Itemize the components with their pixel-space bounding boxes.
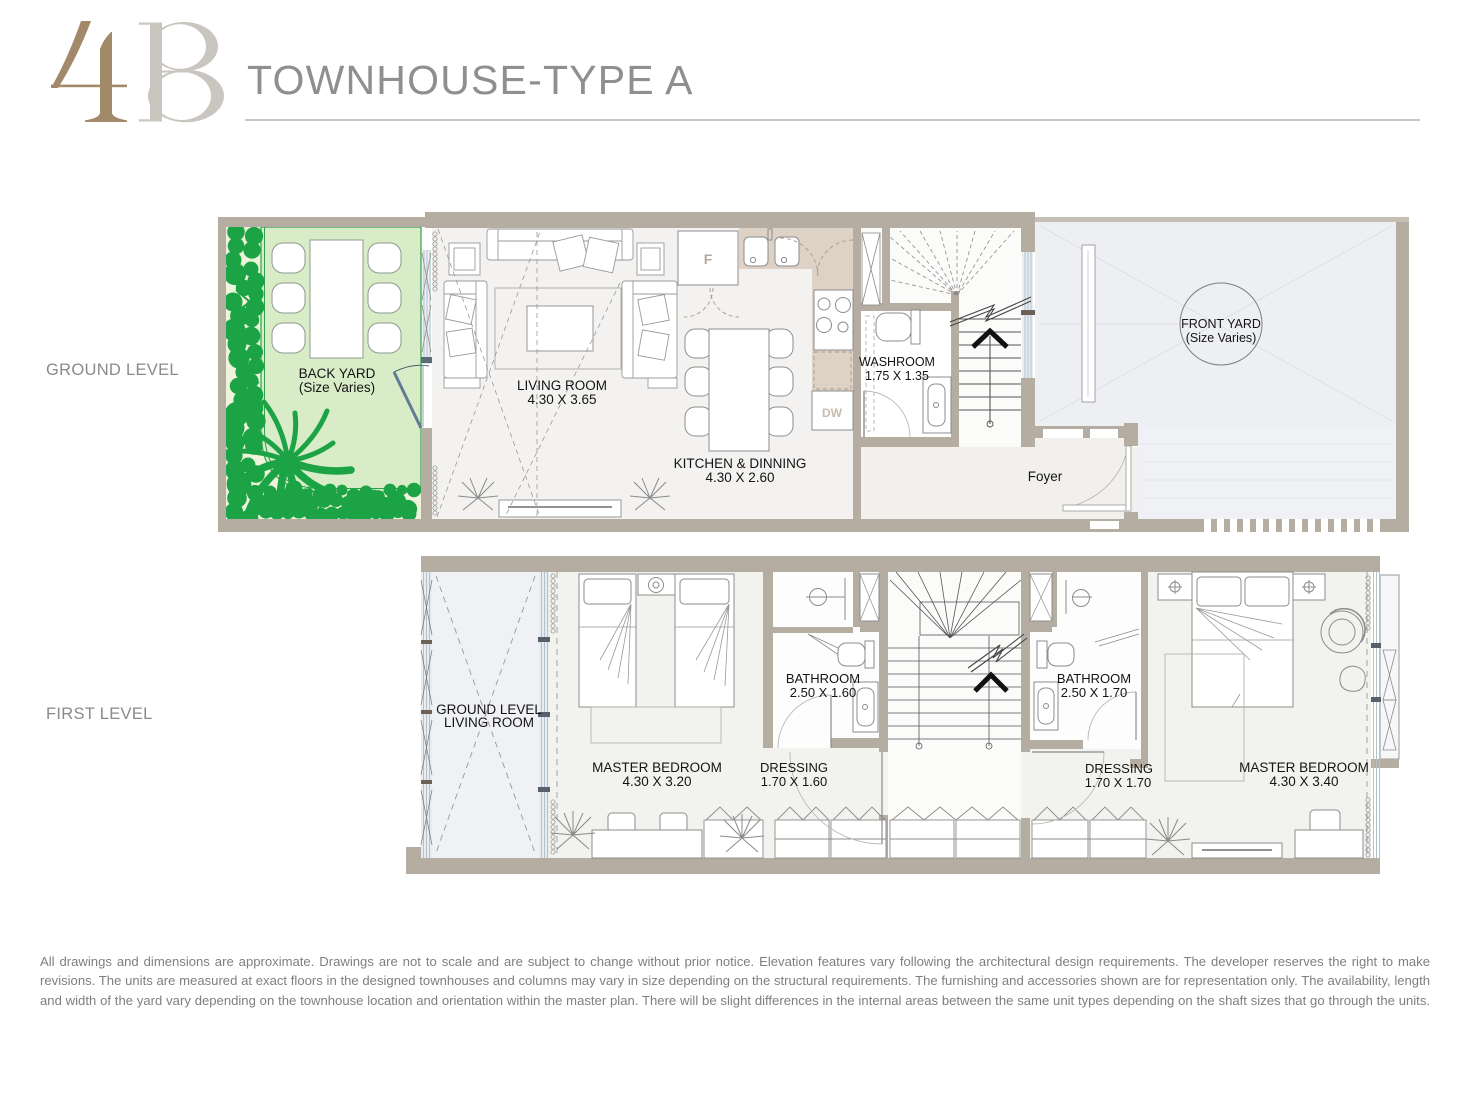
svg-text:4.30 X 3.20: 4.30 X 3.20 (622, 774, 691, 789)
svg-text:BACK YARD: BACK YARD (299, 366, 376, 381)
svg-text:4.30 X 2.60: 4.30 X 2.60 (705, 470, 774, 485)
svg-text:BATHROOM: BATHROOM (786, 671, 860, 686)
svg-text:FRONT YARD: FRONT YARD (1181, 317, 1261, 331)
svg-text:Foyer: Foyer (1028, 469, 1063, 484)
svg-text:LIVING ROOM: LIVING ROOM (444, 715, 534, 730)
svg-text:1.75 X 1.35: 1.75 X 1.35 (865, 369, 929, 383)
svg-text:(Size Varies): (Size Varies) (1186, 331, 1257, 345)
svg-text:1.70 X 1.60: 1.70 X 1.60 (761, 774, 828, 789)
svg-text:2.50 X 1.70: 2.50 X 1.70 (1061, 685, 1128, 700)
svg-text:KITCHEN & DINNING: KITCHEN & DINNING (674, 456, 807, 471)
svg-text:MASTER BEDROOM: MASTER BEDROOM (592, 760, 722, 775)
svg-text:F: F (704, 251, 713, 267)
svg-text:DW: DW (822, 406, 843, 420)
svg-text:MASTER BEDROOM: MASTER BEDROOM (1239, 760, 1369, 775)
svg-text:DRESSING: DRESSING (760, 760, 828, 775)
svg-text:LIVING ROOM: LIVING ROOM (517, 378, 607, 393)
svg-text:4.30 X 3.40: 4.30 X 3.40 (1269, 774, 1338, 789)
svg-text:1.70 X 1.70: 1.70 X 1.70 (1085, 775, 1152, 790)
svg-text:WASHROOM: WASHROOM (859, 355, 935, 369)
svg-text:(Size Varies): (Size Varies) (299, 380, 375, 395)
svg-text:DRESSING: DRESSING (1085, 761, 1153, 776)
svg-text:4.30 X 3.65: 4.30 X 3.65 (527, 392, 596, 407)
svg-text:2.50 X 1.60: 2.50 X 1.60 (790, 685, 857, 700)
svg-text:BATHROOM: BATHROOM (1057, 671, 1131, 686)
